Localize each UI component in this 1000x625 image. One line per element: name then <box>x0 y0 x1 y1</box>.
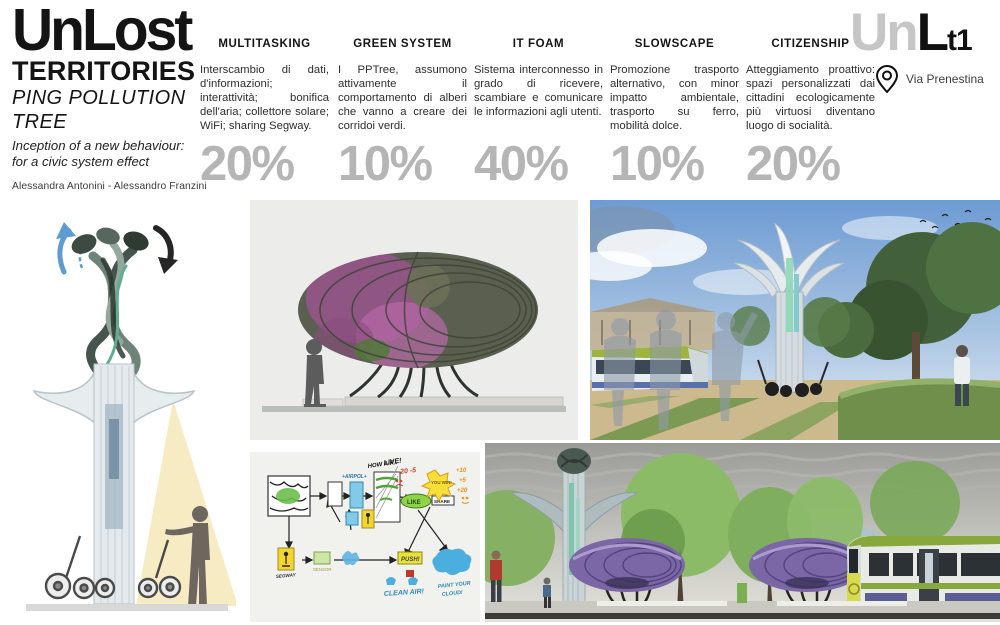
location-pin-icon <box>876 65 898 93</box>
authors-line: Alessandra Antonini - Alessandro Franzin… <box>12 181 222 192</box>
column-percent: 10% <box>338 140 432 189</box>
tower-elevation-image <box>8 214 236 616</box>
person-small <box>543 578 551 609</box>
airpol-label: +AIRPOL+ <box>342 474 367 480</box>
tower-elevation-drawing <box>8 214 236 616</box>
column-text: Interscambio di dati, d'informazioni; in… <box>200 63 329 133</box>
project-name-line1: PING POLLUTION <box>12 86 222 110</box>
street-elevation-drawing <box>485 443 1000 622</box>
share-label: SHARE <box>434 499 450 504</box>
column-header: IT FOAM <box>474 38 603 50</box>
platform <box>345 397 563 406</box>
column-percent: 20% <box>200 140 294 189</box>
tagline-line1: Inception of a new behaviour: <box>12 138 222 154</box>
box-user-blue <box>346 512 358 525</box>
plus-score-1: +10 <box>456 468 467 474</box>
tagline-line2: for a civic system effect <box>12 154 222 170</box>
park-photo-drawing <box>590 200 1000 440</box>
like-label: LIKE <box>407 500 421 506</box>
column-percent: 10% <box>610 140 704 189</box>
concept-column-green-system: GREEN SYSTEM I PPTree, assumono attivame… <box>338 38 467 198</box>
project-name-line2: TREE <box>12 110 222 134</box>
column-text: Sistema interconnesso in grado di riceve… <box>474 63 603 119</box>
pod-render-drawing <box>250 200 578 440</box>
base-line <box>485 613 1000 619</box>
platform-strip <box>597 601 727 606</box>
column-text: I PPTree, assumono attivamente il compor… <box>338 63 467 133</box>
concept-column-slowscape: SLOWSCAPE Promozione trasporto alternati… <box>610 38 739 198</box>
plus-score-3: +20 <box>457 488 468 494</box>
poster-page: { "header": { "title": "UnLost", "subtit… <box>0 0 1000 625</box>
column-header: SLOWSCAPE <box>610 38 739 50</box>
share-box: SHARE <box>432 496 454 505</box>
segway-box: SEGWAY <box>276 548 297 579</box>
title-block: UnLost TERRITORIES PING POLLUTION TREE I… <box>12 2 222 192</box>
park-photo-image <box>590 200 1000 440</box>
logo-part-t1: t1 <box>947 24 972 57</box>
button-doodle <box>406 570 414 577</box>
column-header: GREEN SYSTEM <box>338 38 467 50</box>
column-header: MULTITASKING <box>200 38 329 50</box>
street-elevation-image <box>485 443 1000 622</box>
you-win-label: YOU WIN! <box>431 480 452 485</box>
logo-part-l: L <box>917 3 947 62</box>
logo-wordmark: UnLt1 <box>850 6 995 59</box>
page-title: UnLost <box>12 2 222 58</box>
box-airpol <box>350 482 363 508</box>
box-collector <box>328 482 342 506</box>
location-label: Via Prenestina <box>906 72 984 86</box>
column-percent: 40% <box>474 140 568 189</box>
concept-column-multitasking: MULTITASKING Interscambio di dati, d'inf… <box>200 38 329 198</box>
column-text: Promozione trasporto alternativo, con mi… <box>610 63 739 133</box>
map-sketch <box>268 476 310 516</box>
pod-render-image <box>250 200 578 440</box>
sensor-label: SENSOR <box>313 567 332 572</box>
concept-sketch-image: +AIRPOL+ HOW AIR.. LIVE! LIKE SHARE -20 … <box>250 452 480 622</box>
logo-block: UnLt1 Via Prenestina <box>850 6 995 93</box>
box-user-yellow <box>362 510 374 528</box>
ground-line <box>26 604 228 611</box>
concept-column-it-foam: IT FOAM Sistema interconnesso in grado d… <box>474 38 603 198</box>
concept-sketch-drawing: +AIRPOL+ HOW AIR.. LIVE! LIKE SHARE -20 … <box>250 452 480 622</box>
green-post <box>737 583 747 603</box>
column-percent: 20% <box>746 140 840 189</box>
sensor-box: SENSOR <box>313 552 332 572</box>
platform-strip <box>777 601 907 606</box>
push-box: PUSH! <box>398 552 422 564</box>
push-label: PUSH! <box>401 557 420 563</box>
logo-part-un: Un <box>850 3 917 62</box>
tram <box>847 536 1000 609</box>
plus-score-2: +5 <box>459 478 467 484</box>
display-panel <box>374 466 400 522</box>
